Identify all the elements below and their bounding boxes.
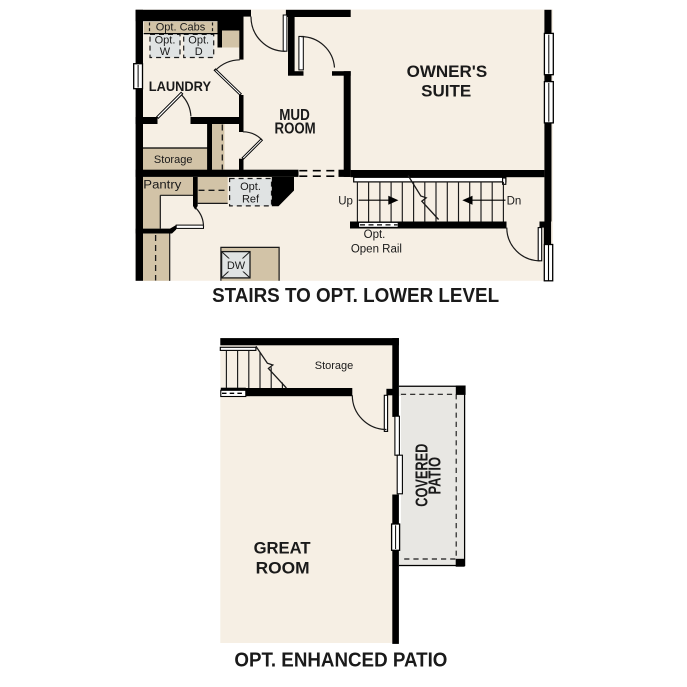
svg-text:PATIO: PATIO bbox=[424, 457, 444, 495]
svg-text:Pantry: Pantry bbox=[143, 180, 181, 192]
svg-text:Open Rail: Open Rail bbox=[351, 244, 402, 256]
svg-text:Opt.: Opt. bbox=[364, 229, 386, 241]
svg-text:STAIRS TO OPT. LOWER LEVEL: STAIRS TO OPT. LOWER LEVEL bbox=[212, 285, 499, 307]
svg-text:OPT. ENHANCED PATIO: OPT. ENHANCED PATIO bbox=[234, 650, 447, 672]
svg-text:DW: DW bbox=[227, 260, 246, 272]
svg-text:W: W bbox=[160, 46, 171, 58]
svg-text:ROOM: ROOM bbox=[256, 560, 310, 578]
svg-text:Opt.: Opt. bbox=[155, 35, 176, 47]
svg-text:Ref: Ref bbox=[242, 193, 260, 205]
svg-text:Up: Up bbox=[338, 195, 353, 207]
svg-text:Storage: Storage bbox=[315, 360, 354, 372]
svg-text:Dn: Dn bbox=[507, 196, 522, 208]
svg-text:Storage: Storage bbox=[154, 154, 193, 166]
svg-text:Opt.: Opt. bbox=[188, 35, 209, 47]
svg-text:OWNER'S: OWNER'S bbox=[407, 62, 488, 81]
svg-text:SUITE: SUITE bbox=[421, 81, 471, 100]
svg-text:ROOM: ROOM bbox=[275, 121, 316, 138]
svg-text:GREAT: GREAT bbox=[254, 540, 311, 558]
svg-text:D: D bbox=[195, 46, 203, 58]
svg-text:Opt.: Opt. bbox=[240, 181, 261, 193]
svg-text:LAUNDRY: LAUNDRY bbox=[149, 79, 211, 94]
svg-text:Opt. Cabs: Opt. Cabs bbox=[156, 22, 206, 34]
